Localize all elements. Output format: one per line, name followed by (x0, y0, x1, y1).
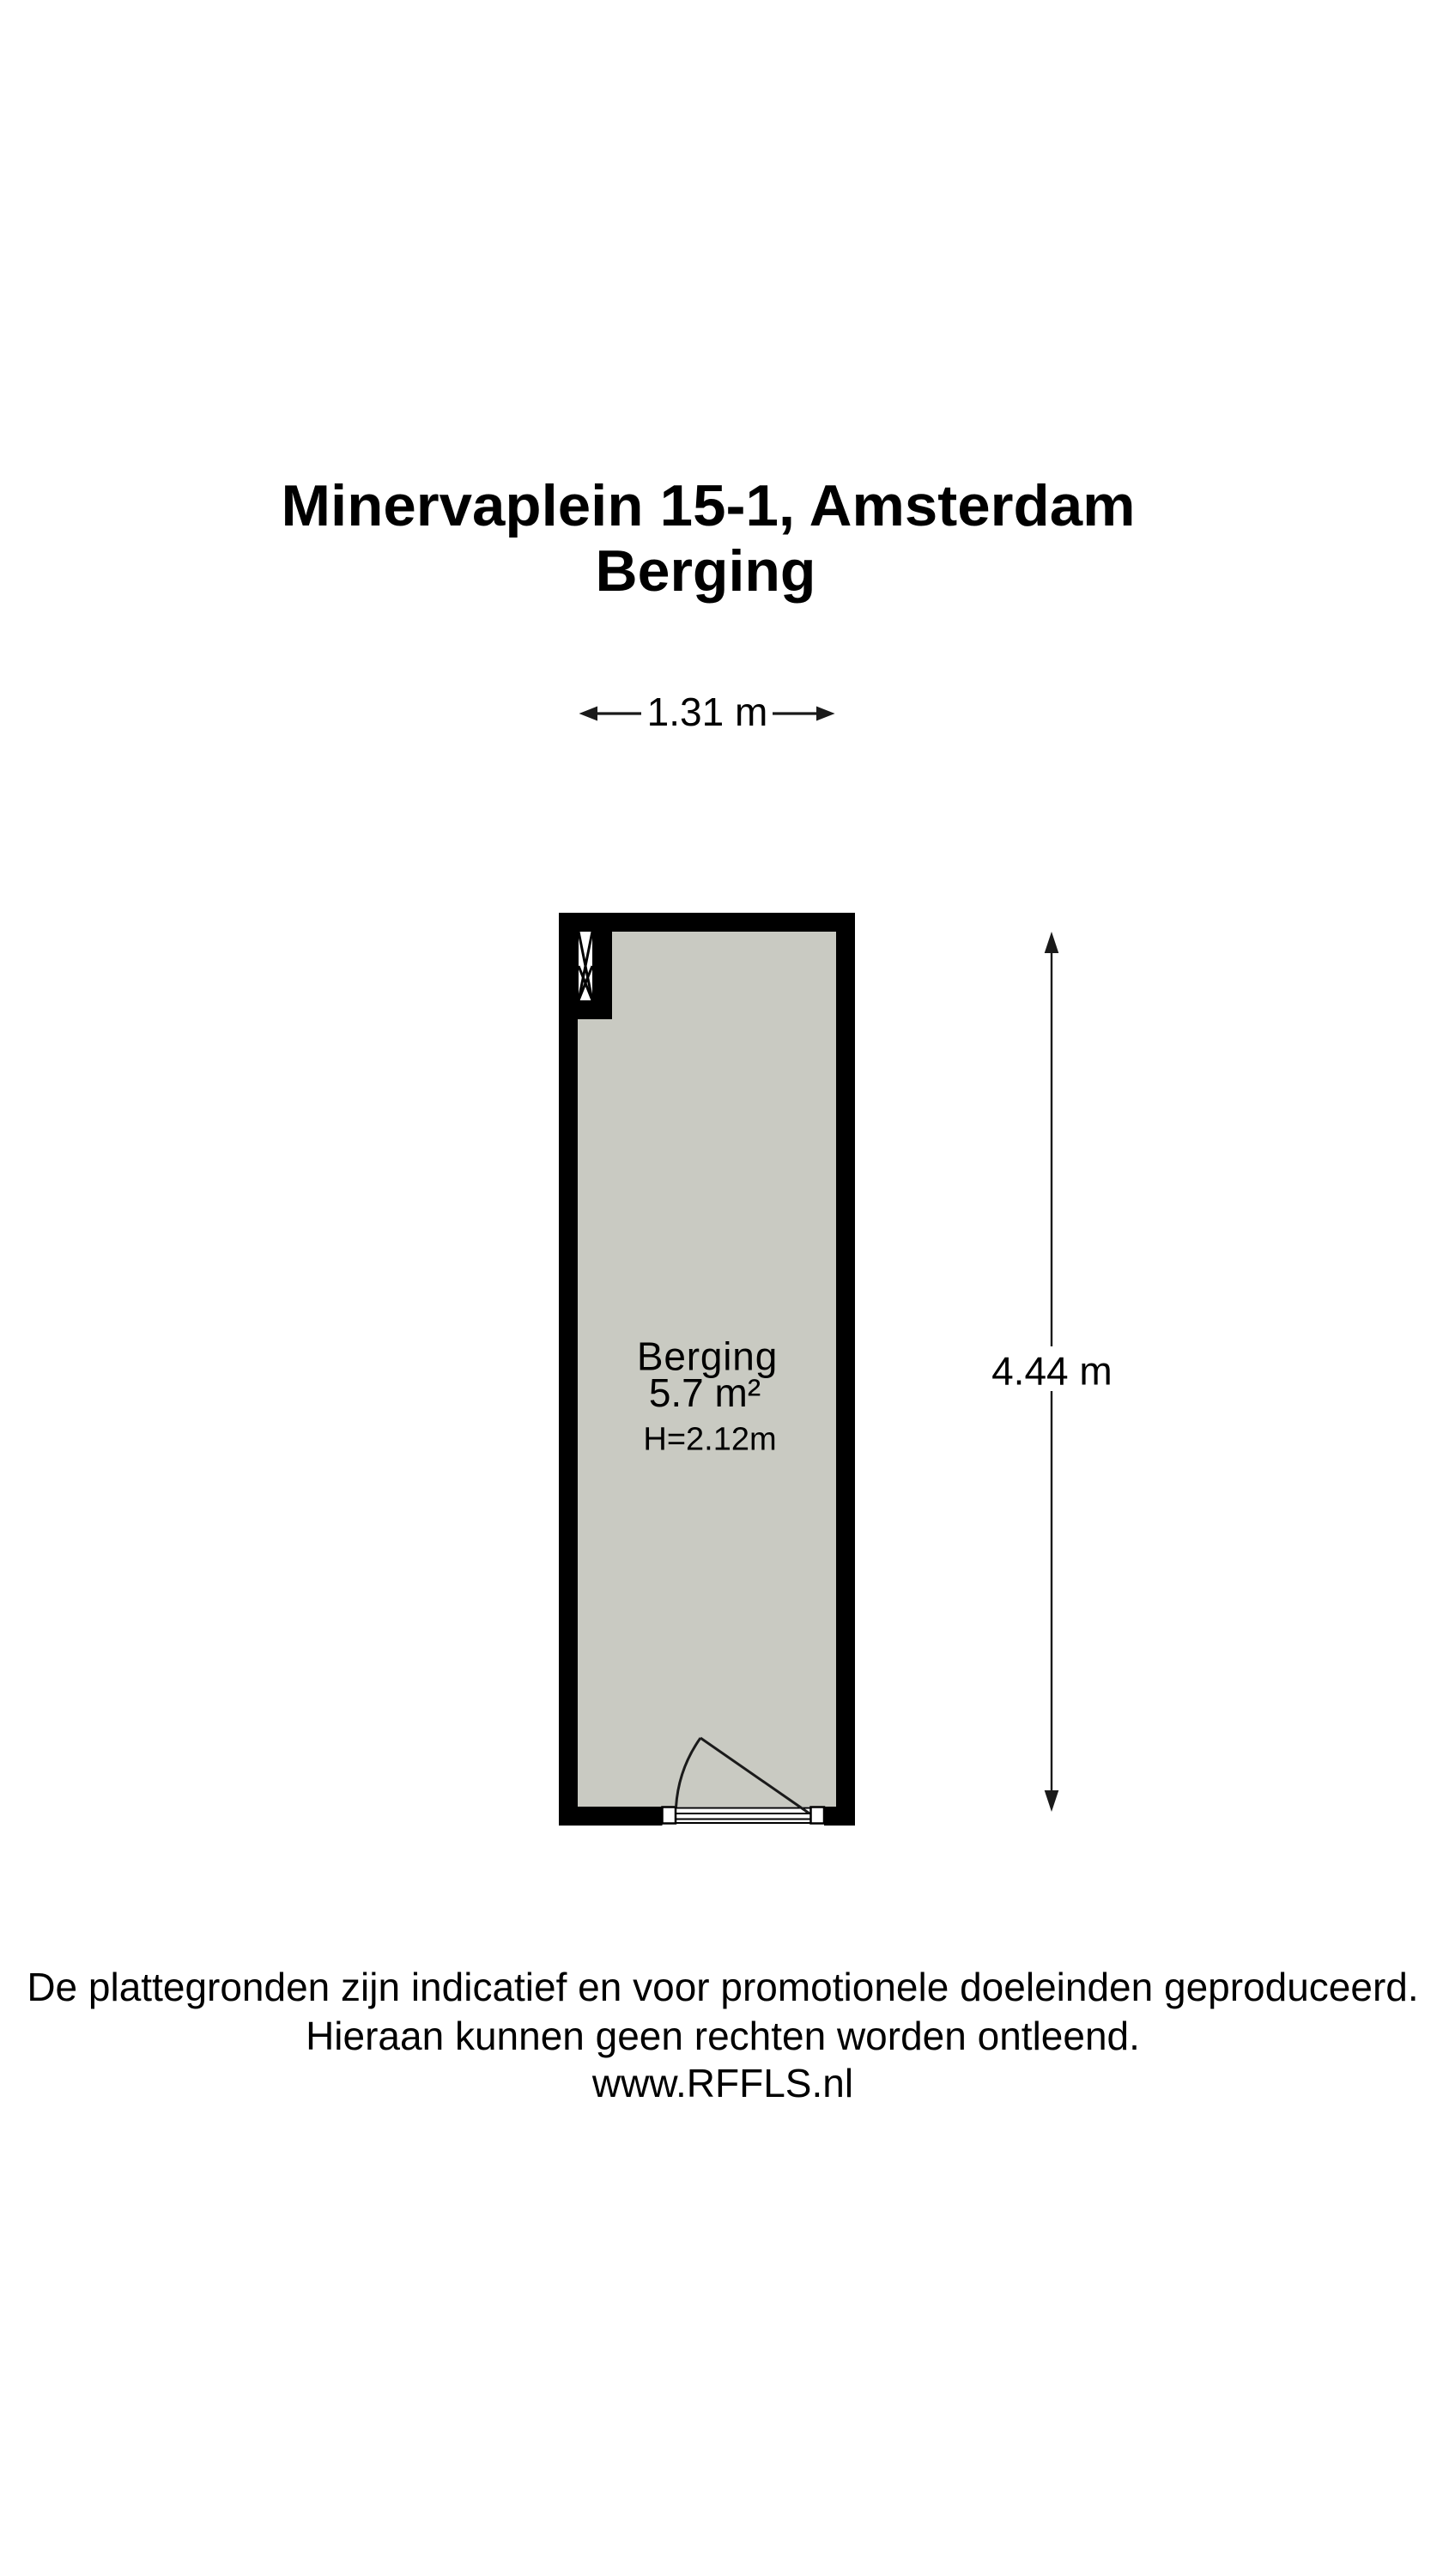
svg-text:Berging: Berging (596, 538, 816, 604)
svg-text:4.44 m: 4.44 m (991, 1349, 1113, 1394)
svg-text:H=2.12m: H=2.12m (643, 1422, 776, 1458)
svg-text:5.7 m²: 5.7 m² (649, 1370, 761, 1415)
svg-text:De plattegronden zijn indicati: De plattegronden zijn indicatief en voor… (27, 1965, 1418, 2009)
svg-text:1.31 m: 1.31 m (647, 690, 768, 734)
svg-text:Minervaplein 15-1, Amsterdam: Minervaplein 15-1, Amsterdam (282, 473, 1136, 538)
svg-text:www.RFFLS.nl: www.RFFLS.nl (591, 2061, 853, 2105)
svg-text:Hieraan kunnen geen rechten wo: Hieraan kunnen geen rechten worden ontle… (306, 2014, 1140, 2058)
